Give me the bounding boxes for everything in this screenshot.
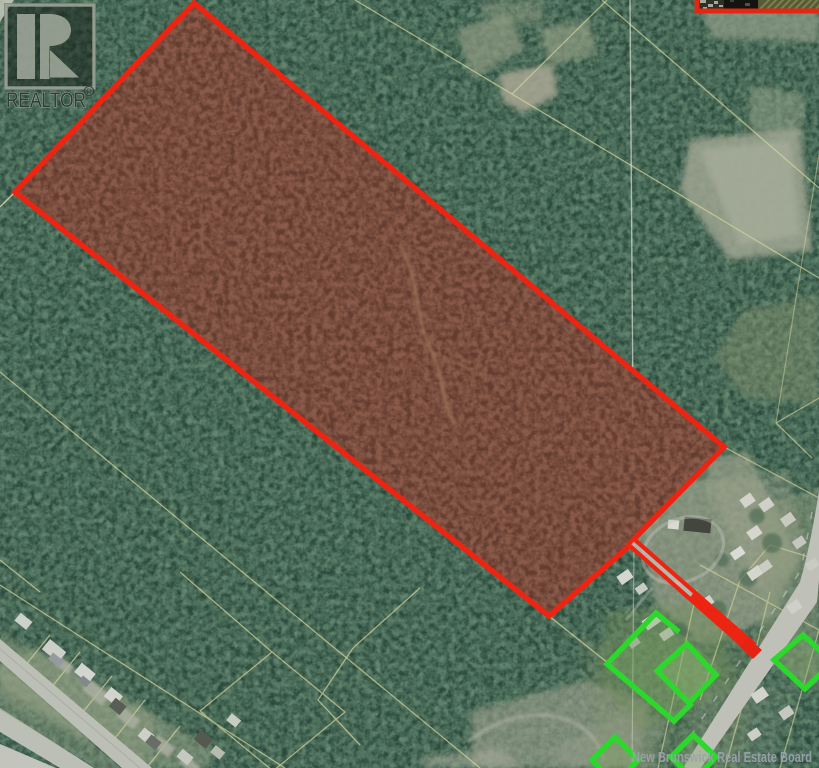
svg-text:New Brunswick Real Estate Boar: New Brunswick Real Estate Board xyxy=(632,749,812,766)
svg-text:R: R xyxy=(86,88,92,97)
svg-text:REALTOR: REALTOR xyxy=(6,89,86,112)
